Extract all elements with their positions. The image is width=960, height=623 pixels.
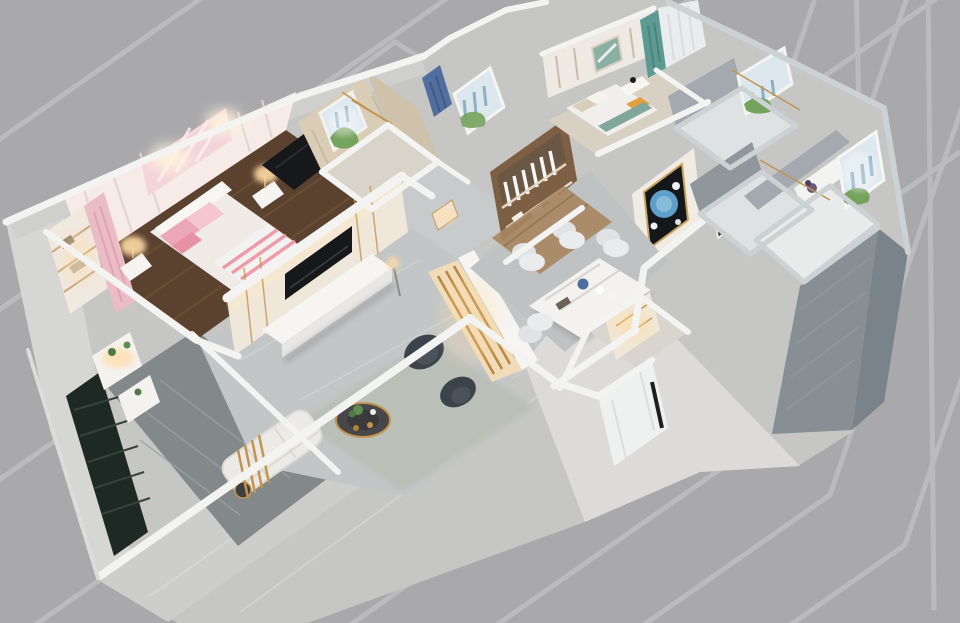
white-flower (651, 223, 658, 230)
gold-decor (367, 422, 373, 428)
bonsai-plant (135, 389, 142, 396)
bonsai-plant (108, 348, 116, 356)
dish (370, 409, 376, 415)
floor-lamp-glow (387, 257, 399, 269)
bonsai-plant (124, 342, 131, 349)
blue-teapot (578, 279, 589, 290)
shelf-light-glow (102, 348, 134, 368)
apartment-3d-render (0, 0, 960, 623)
niche-glow (436, 208, 456, 224)
plate (596, 286, 604, 294)
window-light (328, 108, 360, 136)
table-lamp-glow (120, 236, 146, 256)
purple-plant (805, 180, 811, 186)
floorplan-render-stage (0, 0, 960, 623)
clock (630, 77, 636, 83)
gold-decor (353, 425, 359, 431)
white-flower (672, 182, 680, 190)
white-flower (675, 219, 681, 225)
blue-rose-center (656, 196, 672, 212)
table-plant (349, 411, 356, 418)
plate (610, 292, 618, 300)
